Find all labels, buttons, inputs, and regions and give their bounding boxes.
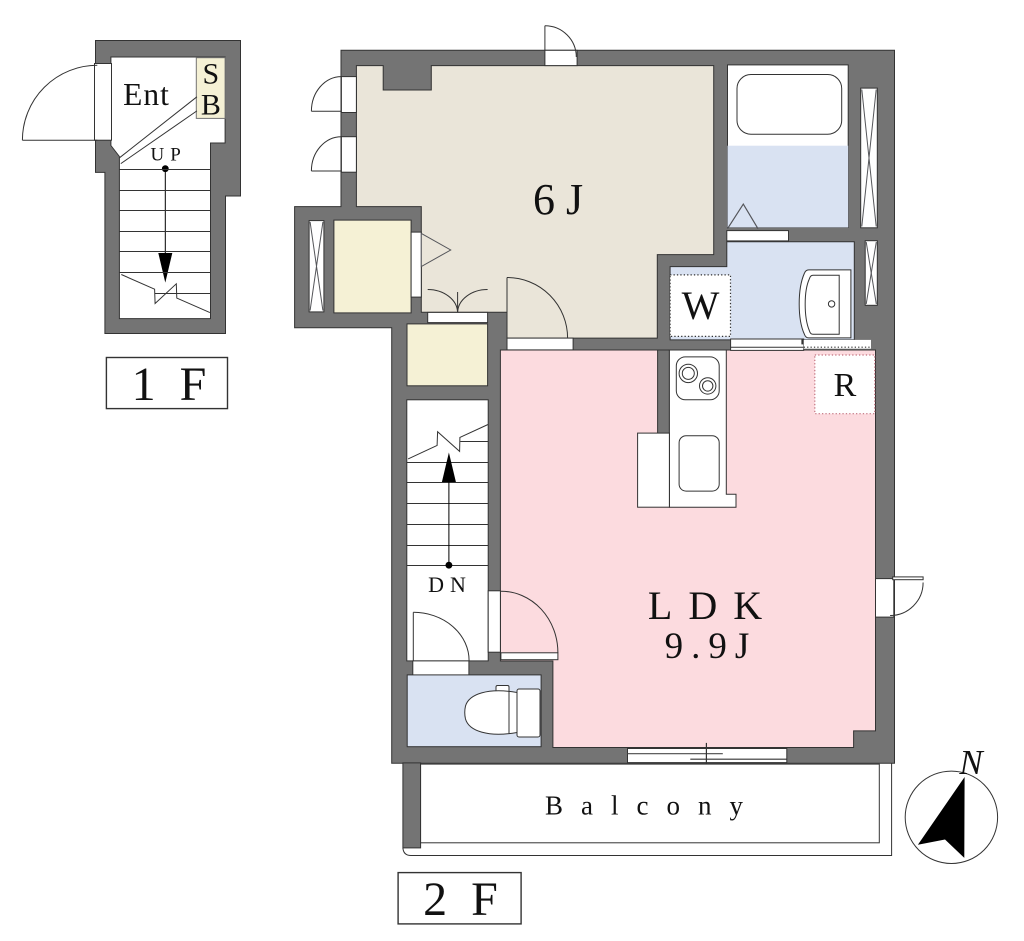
- svg-text:6 J: 6 J: [533, 175, 583, 224]
- svg-text:R: R: [834, 367, 857, 404]
- svg-text:Ent: Ent: [123, 77, 170, 112]
- svg-text:1 F: 1 F: [132, 358, 213, 411]
- svg-text:S: S: [203, 58, 220, 91]
- svg-text:LDK: LDK: [648, 583, 778, 628]
- svg-text:2 F: 2 F: [423, 873, 504, 926]
- svg-text:W: W: [682, 283, 720, 328]
- svg-text:Balcony: Balcony: [545, 791, 761, 821]
- svg-text:N: N: [958, 743, 984, 782]
- svg-text:DN: DN: [428, 572, 472, 597]
- svg-text:9.9J: 9.9J: [665, 626, 758, 667]
- svg-text:UP: UP: [151, 145, 187, 166]
- svg-text:B: B: [201, 89, 221, 122]
